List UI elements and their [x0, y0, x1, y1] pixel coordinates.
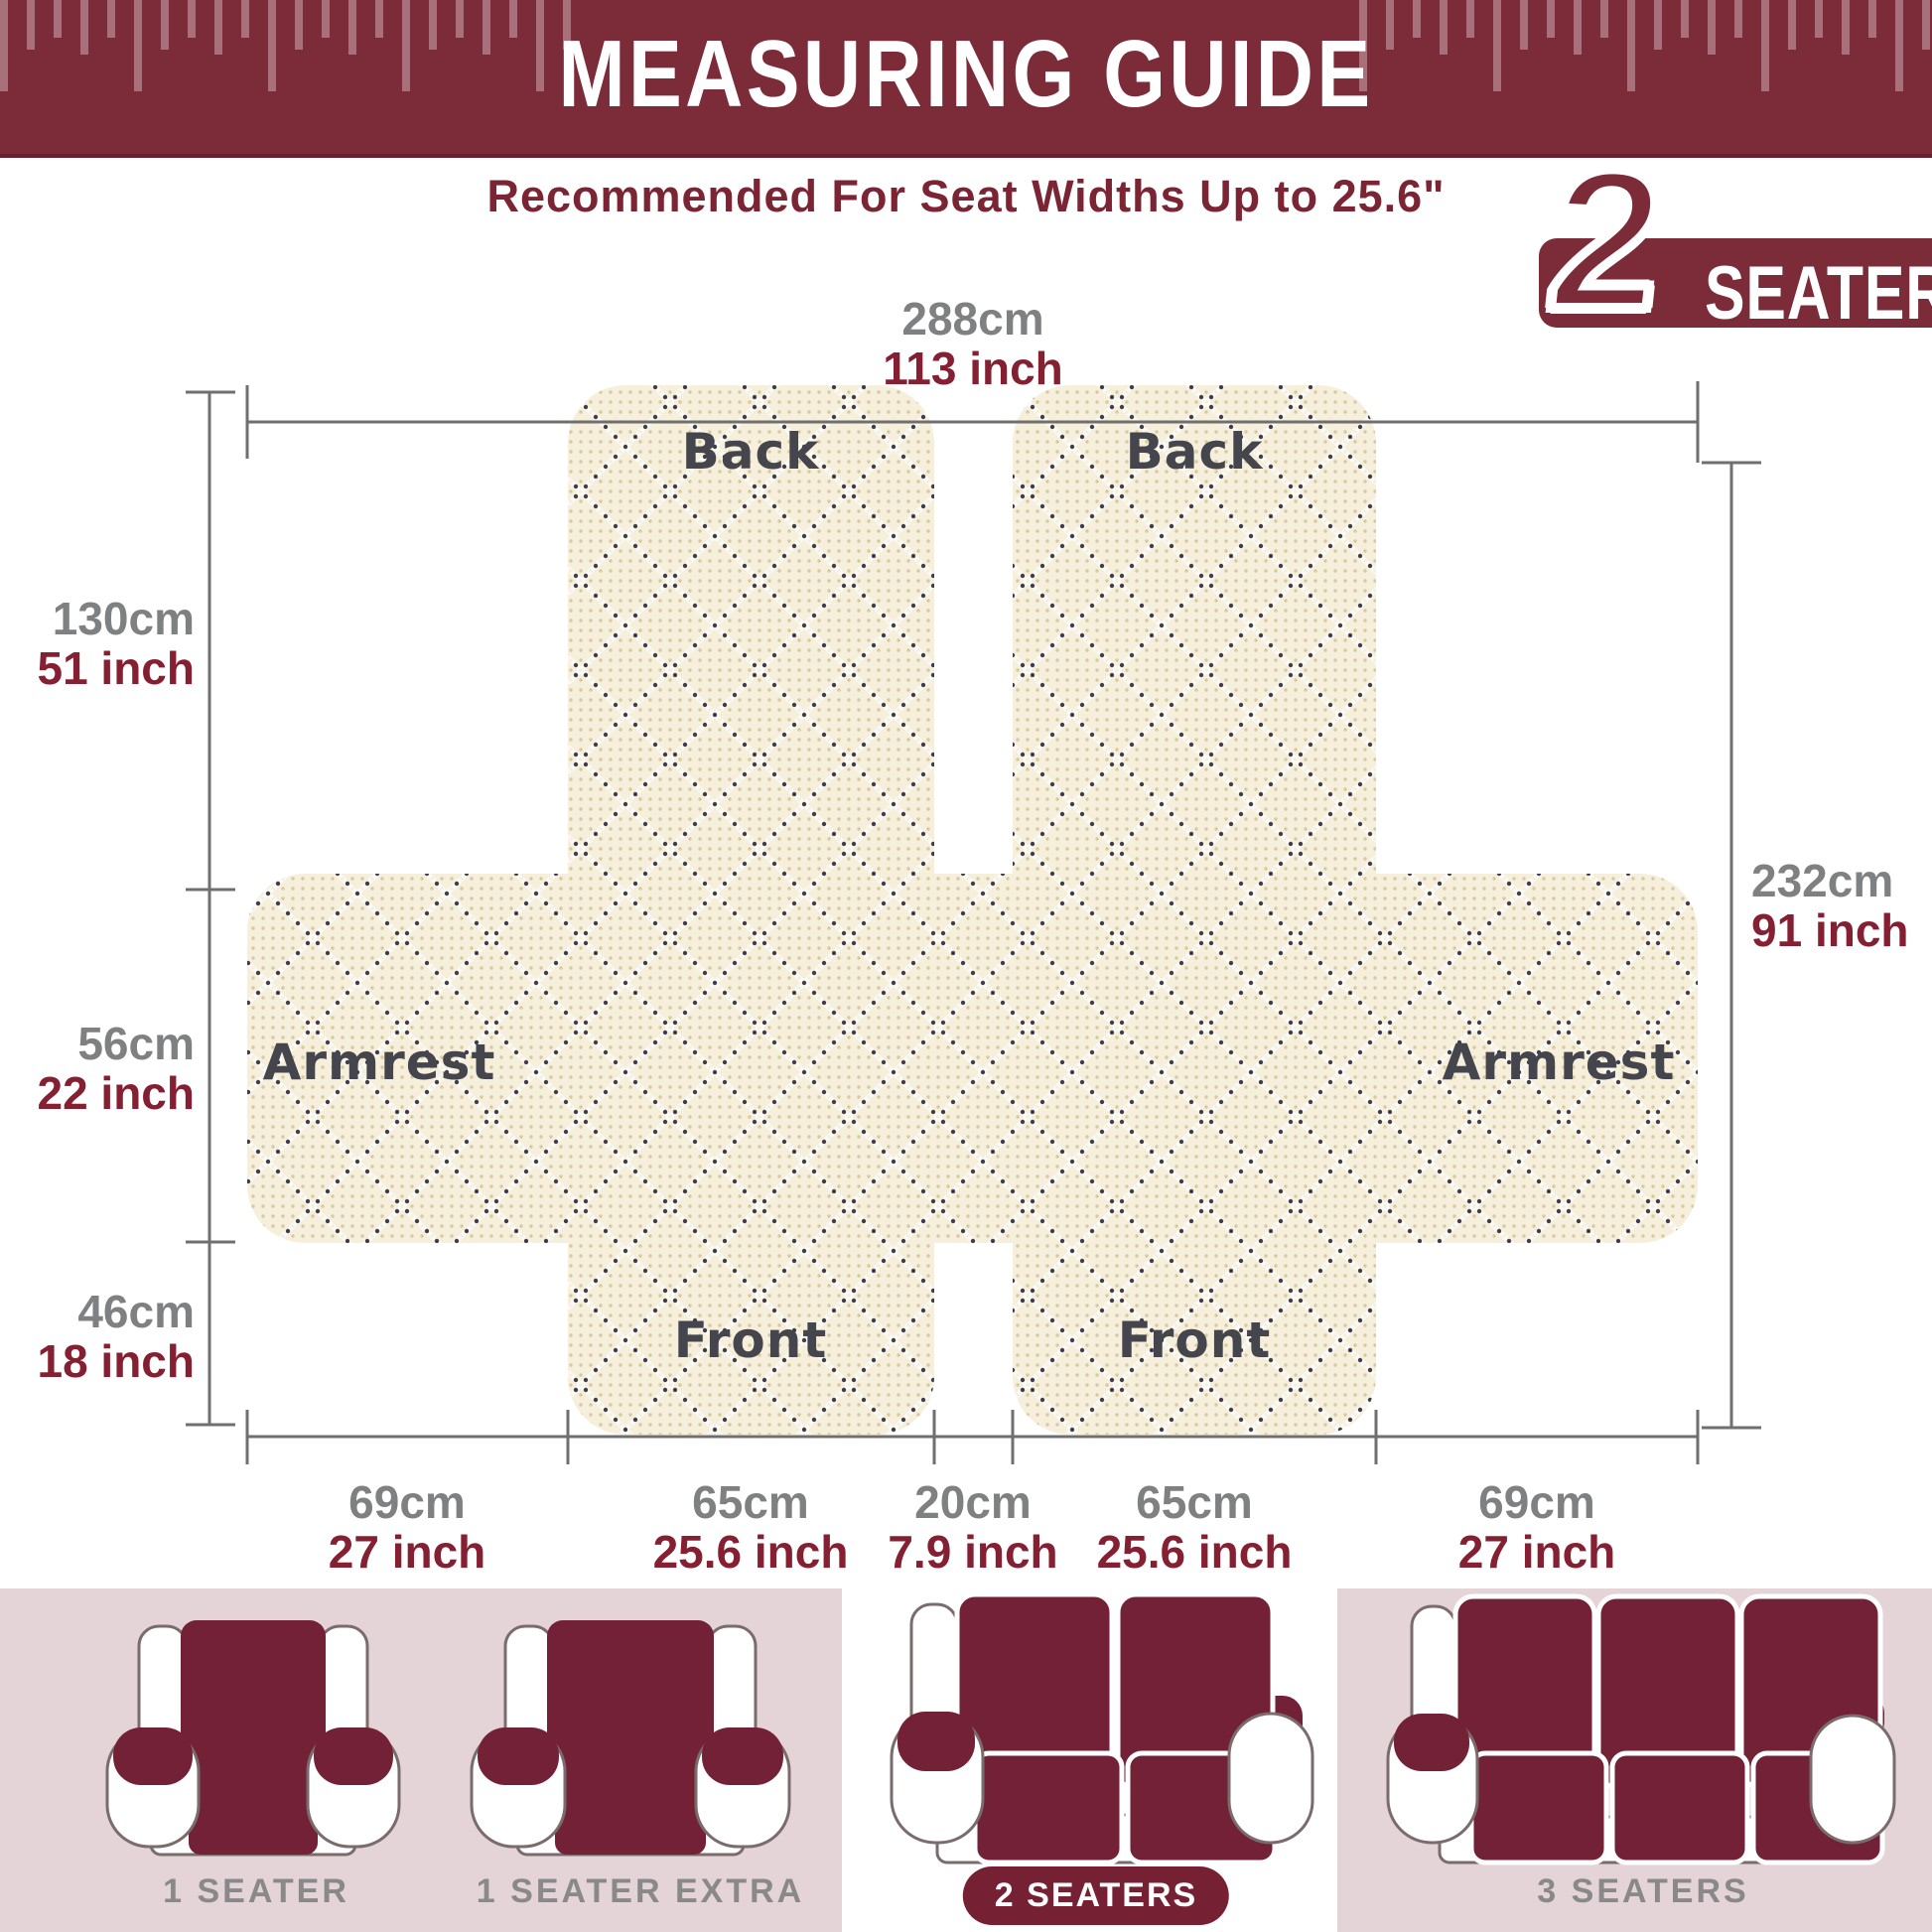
dim-left-0-cm: 130cm	[37, 594, 195, 643]
dim-right: 232cm 91 inch	[1751, 856, 1909, 955]
dim-left-1: 56cm 22 inch	[37, 1019, 195, 1118]
thumb-label-1-seater: 1 SEATER	[163, 1872, 349, 1911]
dim-bottom-3: 65cm 25.6 inch	[1097, 1477, 1293, 1577]
back-label-left: Back	[682, 423, 820, 481]
dim-bottom-3-cm: 65cm	[1097, 1477, 1293, 1527]
dim-top: 288cm 113 inch	[883, 294, 1063, 393]
dim-left-2: 46cm 18 inch	[37, 1287, 195, 1386]
front-flap-right	[1013, 1176, 1376, 1435]
dim-top-cm: 288cm	[883, 294, 1063, 344]
dim-left-2-cm: 46cm	[37, 1287, 195, 1336]
dim-bottom-1: 65cm 25.6 inch	[653, 1477, 849, 1577]
thumbnail-1-seater	[89, 1610, 417, 1866]
dim-bottom-2-inch: 7.9 inch	[888, 1527, 1057, 1577]
thumb-label-1-seater-extra: 1 SEATER EXTRA	[477, 1872, 804, 1911]
dim-bottom-0-cm: 69cm	[329, 1477, 486, 1527]
thumbnail-1-seater-extra	[452, 1610, 809, 1866]
dim-left-2-inch: 18 inch	[37, 1336, 195, 1386]
dim-top-inch: 113 inch	[883, 344, 1063, 393]
cover-shape	[247, 385, 1698, 1435]
dim-bottom-0-inch: 27 inch	[329, 1527, 486, 1577]
thumbnail-3-seaters	[1382, 1587, 1898, 1874]
dim-bottom-4-inch: 27 inch	[1458, 1527, 1616, 1577]
armrest-label-left: Armrest	[263, 1034, 496, 1091]
dim-bottom-2-cm: 20cm	[888, 1477, 1057, 1527]
thumbnail-2-seaters	[884, 1587, 1320, 1874]
dim-right-inch: 91 inch	[1751, 905, 1909, 955]
dim-left-1-inch: 22 inch	[37, 1068, 195, 1118]
dim-bottom-2: 20cm 7.9 inch	[888, 1477, 1057, 1577]
front-label-left: Front	[674, 1311, 827, 1369]
dim-right-cm: 232cm	[1751, 856, 1909, 905]
dim-bottom-4-cm: 69cm	[1458, 1477, 1616, 1527]
thumb-label-3-seaters: 3 SEATERS	[1537, 1872, 1748, 1911]
front-label-right: Front	[1118, 1311, 1271, 1369]
dim-bottom-1-cm: 65cm	[653, 1477, 849, 1527]
measuring-guide-page: MEASURING GUIDE Recommended For Seat Wid…	[0, 0, 1932, 1932]
dim-bottom-0: 69cm 27 inch	[329, 1477, 486, 1577]
dim-left-0-inch: 51 inch	[37, 643, 195, 693]
dim-bottom-3-inch: 25.6 inch	[1097, 1527, 1293, 1577]
dim-left-0: 130cm 51 inch	[37, 594, 195, 693]
front-flap-left	[568, 1176, 934, 1435]
back-label-right: Back	[1126, 423, 1264, 481]
armrest-label-right: Armrest	[1443, 1034, 1676, 1091]
dim-left-1-cm: 56cm	[37, 1019, 195, 1068]
dim-bottom-4: 69cm 27 inch	[1458, 1477, 1616, 1577]
thumb-label-2-seaters: 2 SEATERS	[963, 1866, 1229, 1925]
dim-bottom-1-inch: 25.6 inch	[653, 1527, 849, 1577]
